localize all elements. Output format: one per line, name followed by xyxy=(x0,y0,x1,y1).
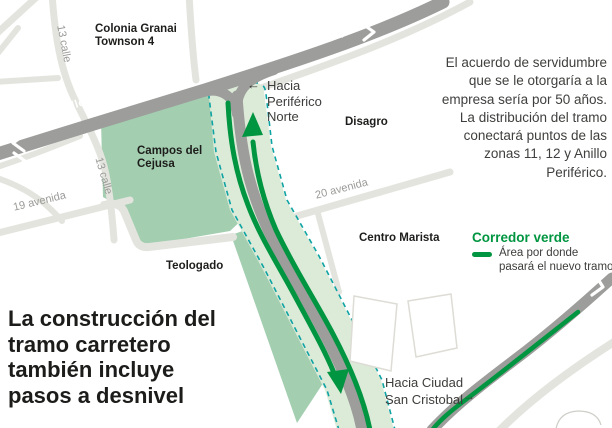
map-infographic: Colonia Granai Townson 4 Anillo Periféri… xyxy=(0,0,612,428)
label-hacia-ciudad-san-cristobal: Hacia Ciudad San Cristobal→ xyxy=(385,374,475,409)
chevron-left-icon xyxy=(332,21,342,36)
label-campos-del-cejusa: Campos del Cejusa xyxy=(137,145,202,171)
building-outlines xyxy=(350,294,457,371)
label-teologado: Teologado xyxy=(166,260,223,273)
legend-line-swatch xyxy=(472,252,492,257)
building-outline xyxy=(408,294,457,357)
chevron-downleft-icon xyxy=(595,298,606,316)
annotation-text: El acuerdo de servidumbre que se le otor… xyxy=(397,54,607,182)
label-colonia-granai: Colonia Granai Townson 4 xyxy=(95,23,177,49)
headline: La construcción del tramo carretero tamb… xyxy=(8,306,216,408)
label-hacia-periferico-norte: Hacia Periférico Norte xyxy=(267,78,322,125)
label-disagro: Disagro xyxy=(345,116,388,129)
legend-item-text: Área por donde pasará el nuevo tramo xyxy=(499,247,612,274)
label-hacia-periferico-arrow: ← xyxy=(247,78,260,93)
legend-title: Corredor verde xyxy=(472,230,570,246)
label-centro-marista: Centro Marista xyxy=(359,232,440,245)
right-arrow-icon: → xyxy=(463,389,475,403)
roundabout-arc xyxy=(556,411,601,428)
building-outline xyxy=(350,296,397,371)
